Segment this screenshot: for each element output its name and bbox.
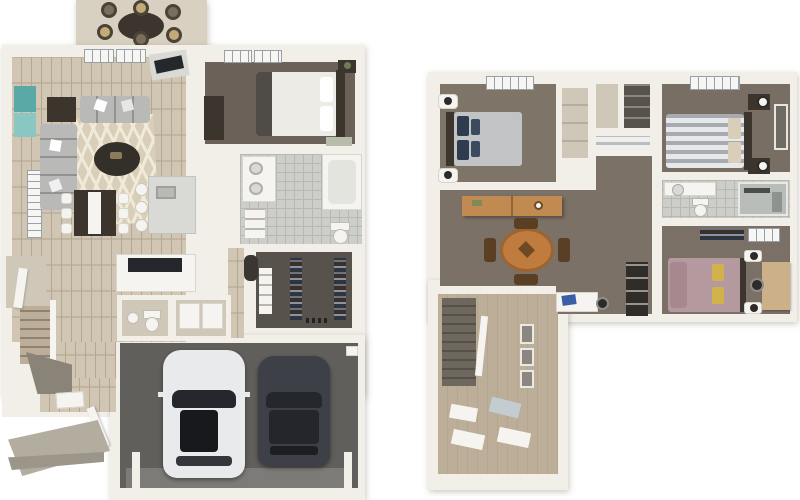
vanity-sink-icon	[672, 184, 684, 196]
laptop-icon	[561, 294, 576, 306]
bedroom1-window-icon	[224, 50, 252, 63]
dining-chair	[61, 193, 72, 204]
living-window-icon	[116, 49, 146, 63]
dining-chair	[118, 208, 129, 219]
patio-chair	[97, 24, 113, 40]
white-car-mirror	[158, 392, 165, 397]
living-window-icon	[84, 49, 114, 63]
garage-front-wall	[114, 488, 364, 500]
kitchen-island	[148, 176, 196, 234]
desk-chair	[596, 297, 609, 310]
wall-art-teal	[14, 113, 36, 137]
coat-closet-floor	[6, 256, 46, 308]
patio-chair	[166, 27, 182, 43]
dark-car-windshield	[266, 392, 322, 408]
shower-fixture-icon	[744, 188, 770, 193]
toilet-bowl-icon	[145, 317, 159, 332]
coffee-table	[94, 142, 140, 176]
closet-rod-left	[290, 258, 302, 320]
dark-car-rear-window	[270, 446, 318, 455]
floorplan-canvas	[0, 0, 800, 500]
loft-chair	[514, 218, 538, 229]
toilet-bowl-icon	[694, 204, 707, 217]
pedestal-sink-icon	[127, 312, 139, 324]
island-sink-icon	[156, 186, 176, 199]
loft-chair	[558, 238, 570, 262]
hallway-floor	[596, 156, 652, 192]
loft-chair	[484, 238, 496, 262]
dark-car-roof-glass	[269, 410, 319, 444]
nightstand-lamp-icon	[750, 252, 758, 260]
garage-pillar	[132, 452, 140, 490]
coffee-table-decor	[110, 152, 122, 159]
bar-stool	[135, 201, 148, 214]
garage-door-opener-icon	[346, 346, 358, 356]
linen-closet	[596, 136, 650, 150]
bar-stool	[135, 183, 148, 196]
bed2-pillow-navy	[457, 116, 469, 136]
patio-chair	[165, 4, 181, 20]
shower-shelf-icon	[772, 192, 782, 212]
bedroom4-closet-rod	[700, 228, 744, 240]
bed2-headboard	[446, 112, 454, 166]
bedroom2-window-icon	[486, 76, 534, 90]
bed2-pillow-navy	[457, 140, 469, 160]
water-heater-icon	[244, 255, 258, 281]
staircase-down	[442, 298, 476, 386]
closet-shelf-towels	[259, 268, 272, 314]
bedroom1-window-icon	[254, 50, 282, 63]
bedroom2-closet-floor	[562, 88, 588, 158]
white-car-mirror	[243, 392, 250, 397]
bed4-pillow-yellow	[712, 287, 724, 304]
nightstand-lamp-icon	[757, 96, 769, 108]
range-stove-icon	[128, 258, 182, 272]
dining-runner	[88, 192, 101, 234]
bench-sage	[326, 137, 352, 146]
wall-art-teal	[14, 86, 36, 112]
bed4-pillow-mauve	[670, 262, 687, 308]
bed1-foot-throw	[256, 72, 272, 136]
bed1-headboard	[336, 70, 345, 138]
hall-closet-right-floor	[624, 84, 650, 128]
sectional-sofa-top	[80, 96, 150, 123]
linen-shelf	[245, 208, 265, 238]
washer-icon	[179, 303, 200, 329]
hall-closet-left-floor	[596, 84, 618, 128]
shoe-row	[306, 318, 330, 323]
loft-chair	[514, 274, 538, 285]
toilet-bowl-icon	[333, 229, 348, 244]
bedroom4-desk	[762, 262, 790, 310]
nightstand-lamp-icon	[444, 97, 452, 105]
bathtub-basin	[328, 160, 356, 204]
console-decor	[534, 201, 543, 210]
white-car-sunroof	[180, 410, 218, 452]
nightstand-lamp-icon	[444, 171, 452, 179]
bed1-pillow	[320, 77, 333, 102]
bedroom3-window-icon	[690, 76, 740, 90]
bed3-pillow	[728, 142, 741, 163]
corner-side-table	[47, 97, 76, 122]
garage-pillar	[344, 452, 352, 490]
bed3-pillow	[728, 118, 741, 139]
nightstand-plant-icon	[344, 62, 351, 69]
vanity-sink-icon	[249, 162, 263, 175]
nightstand-lamp-icon	[757, 160, 769, 172]
desk-chair	[750, 278, 764, 292]
dining-chair	[118, 193, 129, 204]
bed2-pillow-navy	[471, 141, 480, 157]
dining-chair	[118, 223, 129, 234]
white-car-windshield	[172, 390, 236, 408]
bed4-pillow-yellow	[712, 264, 724, 281]
vanity-sink-icon	[249, 182, 263, 195]
dining-chair	[61, 208, 72, 219]
bedroom4-window-icon	[748, 228, 780, 242]
closet-rod-right	[334, 258, 346, 320]
entry-door-mat	[55, 391, 84, 409]
loft-console-divider	[511, 196, 513, 216]
wall-frame	[520, 348, 534, 366]
patio-chair	[133, 0, 149, 16]
closet-corridor-floor	[228, 248, 244, 338]
wall-frame	[520, 324, 534, 344]
bed1-pillow	[320, 106, 333, 131]
dining-chair	[61, 223, 72, 234]
wall-art-photo	[774, 104, 788, 150]
loft-bookshelf	[626, 262, 648, 316]
bar-stool	[135, 219, 148, 232]
bedroom1-dresser	[204, 96, 224, 140]
white-car-rear-window	[176, 456, 232, 466]
console-decor	[472, 200, 482, 206]
sofa-pillow	[49, 139, 62, 152]
wall-frame	[520, 370, 534, 388]
nightstand-lamp-icon	[750, 304, 758, 312]
patio-chair	[101, 2, 117, 18]
bed2-pillow-navy	[471, 119, 480, 135]
dryer-icon	[202, 303, 223, 329]
